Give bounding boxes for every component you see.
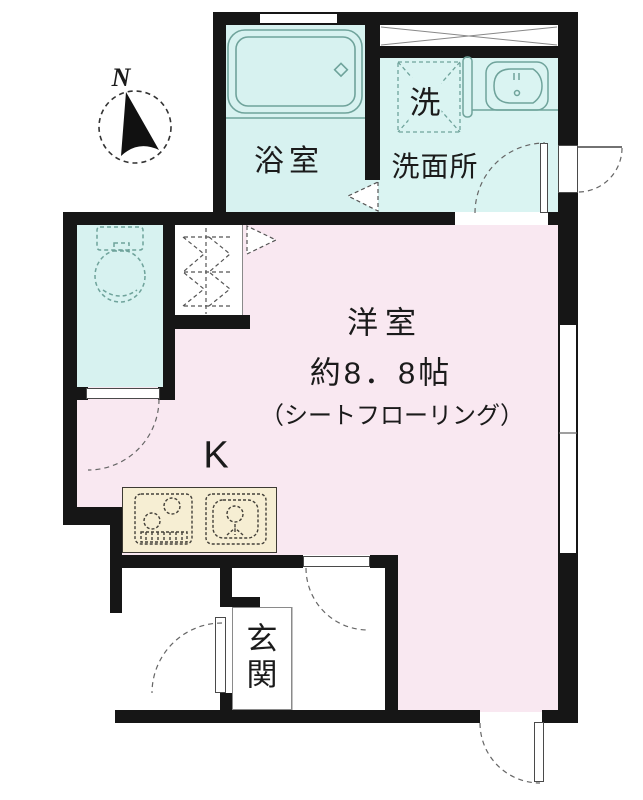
compass-north-label: N bbox=[112, 63, 131, 93]
closet-box bbox=[175, 225, 243, 315]
wall-kitchen-bottom bbox=[110, 555, 303, 568]
wall bbox=[370, 555, 398, 568]
entrance-door-leaf bbox=[215, 617, 226, 693]
washer-label: 洗 bbox=[409, 78, 442, 123]
wall-stub-vertical bbox=[220, 568, 232, 607]
kitchen-label: K bbox=[203, 435, 228, 478]
washroom-exterior-door-leaf bbox=[558, 145, 578, 193]
wall-hall-right bbox=[385, 568, 398, 712]
washroom-floor bbox=[380, 58, 558, 213]
wall-stub-lip bbox=[232, 597, 260, 607]
washroom-door-gap bbox=[455, 212, 548, 225]
washroom-inner-door-leaf bbox=[540, 143, 548, 213]
kitchen-counter bbox=[122, 487, 277, 553]
wall-closet-bottom bbox=[163, 315, 250, 329]
toilet-floor bbox=[77, 225, 163, 387]
compass-icon bbox=[99, 91, 171, 163]
wall-left bbox=[63, 213, 77, 525]
washroom-label: 洗面所 bbox=[391, 145, 478, 185]
wall bbox=[213, 12, 226, 225]
window-top bbox=[260, 12, 337, 25]
entrance-door-arc bbox=[152, 623, 222, 693]
bathroom-floor bbox=[226, 25, 380, 213]
window-right bbox=[558, 325, 578, 553]
room-name-label: 洋室 bbox=[347, 298, 423, 343]
wall-bath-washroom bbox=[365, 25, 380, 180]
wall-bottom-right bbox=[542, 710, 578, 723]
wall bbox=[558, 553, 578, 723]
balcony-door-leaf bbox=[534, 722, 544, 782]
room-to-hall-door-leaf bbox=[303, 556, 370, 567]
western-room-floor-right bbox=[398, 555, 558, 712]
wall bbox=[337, 12, 578, 25]
room-flooring-label: （シートフローリング） bbox=[260, 396, 524, 431]
wall-washroom-top bbox=[380, 46, 558, 58]
wall-bottom bbox=[115, 710, 480, 723]
room-size-label: 約8．8帖 bbox=[310, 348, 452, 393]
washroom-exterior-door-arc bbox=[578, 148, 622, 192]
wall bbox=[158, 387, 175, 400]
wall-toilet-right bbox=[163, 225, 175, 400]
toilet-door-leaf bbox=[86, 388, 160, 399]
entrance-label: 玄関 bbox=[245, 621, 279, 692]
wall-mid-horizontal bbox=[63, 212, 455, 225]
floor-plan: N 浴室 洗 洗面所 洋室 約8．8帖 （シートフローリング） K 玄関 bbox=[0, 0, 643, 800]
wall bbox=[558, 12, 578, 145]
balcony-door-arc bbox=[480, 723, 540, 783]
washroom-top-window-band bbox=[380, 25, 558, 46]
room-to-hall-door-arc bbox=[306, 568, 368, 630]
wall bbox=[548, 212, 578, 225]
bathroom-label: 浴室 bbox=[254, 136, 324, 180]
